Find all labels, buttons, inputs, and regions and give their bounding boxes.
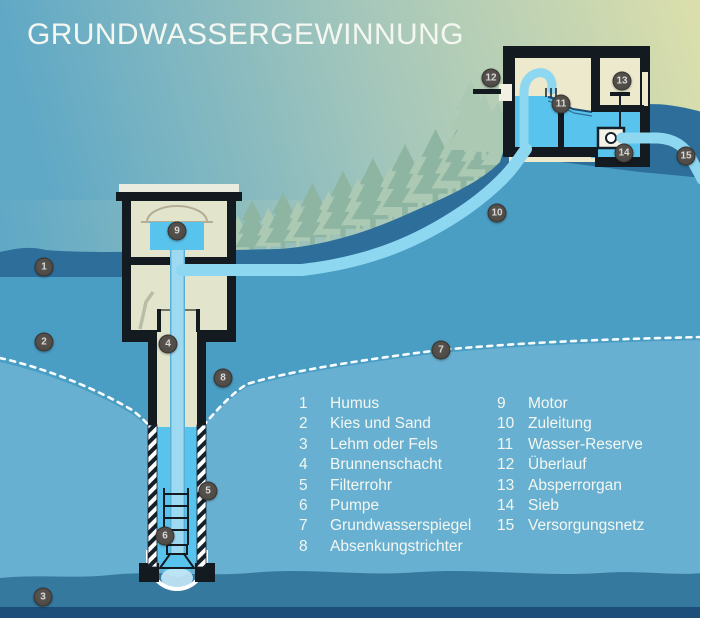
legend-item-right-1: 10Zuleitung bbox=[497, 414, 644, 434]
badge-2: 2 bbox=[35, 333, 54, 352]
legend-label: Versorgungsnetz bbox=[528, 516, 644, 536]
badge-11: 11 bbox=[552, 95, 571, 114]
legend-number: 7 bbox=[299, 516, 330, 536]
legend-label: Lehm oder Fels bbox=[330, 435, 438, 455]
legend-item-left-4: 5Filterrohr bbox=[299, 476, 471, 496]
legend-column-right: 9Motor10Zuleitung11Wasser-Reserve12Überl… bbox=[497, 394, 644, 537]
shaft-wall bbox=[148, 332, 157, 427]
legend-item-left-7: 8Absenkungstrichter bbox=[299, 537, 471, 557]
legend-number: 14 bbox=[497, 496, 528, 516]
reservoir-roof bbox=[503, 46, 650, 58]
badge-6: 6 bbox=[156, 527, 175, 546]
legend-item-right-4: 13Absperrorgan bbox=[497, 476, 644, 496]
legend-item-left-6: 7Grundwasserspiegel bbox=[299, 516, 471, 536]
bottom-strip bbox=[0, 607, 702, 618]
legend-number: 10 bbox=[497, 414, 528, 434]
badge-15: 15 bbox=[677, 147, 696, 166]
legend-number: 6 bbox=[299, 496, 330, 516]
legend-number: 4 bbox=[299, 455, 330, 475]
legend-label: Brunnenschacht bbox=[330, 455, 442, 475]
badge-14: 14 bbox=[615, 144, 634, 163]
legend-number: 1 bbox=[299, 394, 330, 414]
filter-pipe bbox=[148, 425, 157, 567]
legend-number: 15 bbox=[497, 516, 528, 536]
badge-5: 5 bbox=[199, 482, 218, 501]
legend-label: Absenkungstrichter bbox=[330, 537, 463, 557]
legend-item-left-2: 3Lehm oder Fels bbox=[299, 435, 471, 455]
legend-number: 9 bbox=[497, 394, 528, 414]
legend-label: Pumpe bbox=[330, 496, 379, 516]
legend-item-right-0: 9Motor bbox=[497, 394, 644, 414]
badge-13: 13 bbox=[613, 72, 632, 91]
legend-label: Filterrohr bbox=[330, 476, 392, 496]
legend-label: Sieb bbox=[528, 496, 559, 516]
legend-label: Zuleitung bbox=[528, 414, 592, 434]
legend-number: 12 bbox=[497, 455, 528, 475]
diagram-groundwater-extraction: GRUNDWASSERGEWINNUNG 1Humus2Kies und San… bbox=[0, 0, 702, 618]
badge-12: 12 bbox=[482, 69, 501, 88]
legend-label: Humus bbox=[330, 394, 379, 414]
legend-label: Motor bbox=[528, 394, 568, 414]
legend-number: 5 bbox=[299, 476, 330, 496]
legend-label: Wasser-Reserve bbox=[528, 435, 643, 455]
legend-item-left-5: 6Pumpe bbox=[299, 496, 471, 516]
legend-label: Kies und Sand bbox=[330, 414, 431, 434]
legend-label: Absperrorgan bbox=[528, 476, 622, 496]
legend-column-left: 1Humus2Kies und Sand3Lehm oder Fels4Brun… bbox=[299, 394, 471, 557]
legend-label: Grundwasserspiegel bbox=[330, 516, 471, 536]
badge-9: 9 bbox=[168, 222, 187, 241]
legend-item-right-6: 15Versorgungsnetz bbox=[497, 516, 644, 536]
legend-item-left-1: 2Kies und Sand bbox=[299, 414, 471, 434]
riser-pipe bbox=[170, 250, 185, 555]
badge-7: 7 bbox=[432, 341, 451, 360]
legend-number: 11 bbox=[497, 435, 528, 455]
page-title: GRUNDWASSERGEWINNUNG bbox=[27, 18, 464, 52]
badge-8: 8 bbox=[214, 369, 233, 388]
legend-item-right-3: 12Überlauf bbox=[497, 455, 644, 475]
legend-item-right-5: 14Sieb bbox=[497, 496, 644, 516]
badge-3: 3 bbox=[34, 588, 53, 607]
legend-number: 8 bbox=[299, 537, 330, 557]
legend-label: Überlauf bbox=[528, 455, 587, 475]
legend-item-left-0: 1Humus bbox=[299, 394, 471, 414]
legend-item-right-2: 11Wasser-Reserve bbox=[497, 435, 644, 455]
legend-number: 3 bbox=[299, 435, 330, 455]
badge-10: 10 bbox=[488, 204, 507, 223]
legend-number: 2 bbox=[299, 414, 330, 434]
legend-item-left-3: 4Brunnenschacht bbox=[299, 455, 471, 475]
badge-1: 1 bbox=[35, 258, 54, 277]
legend-number: 13 bbox=[497, 476, 528, 496]
badge-4: 4 bbox=[159, 335, 178, 354]
